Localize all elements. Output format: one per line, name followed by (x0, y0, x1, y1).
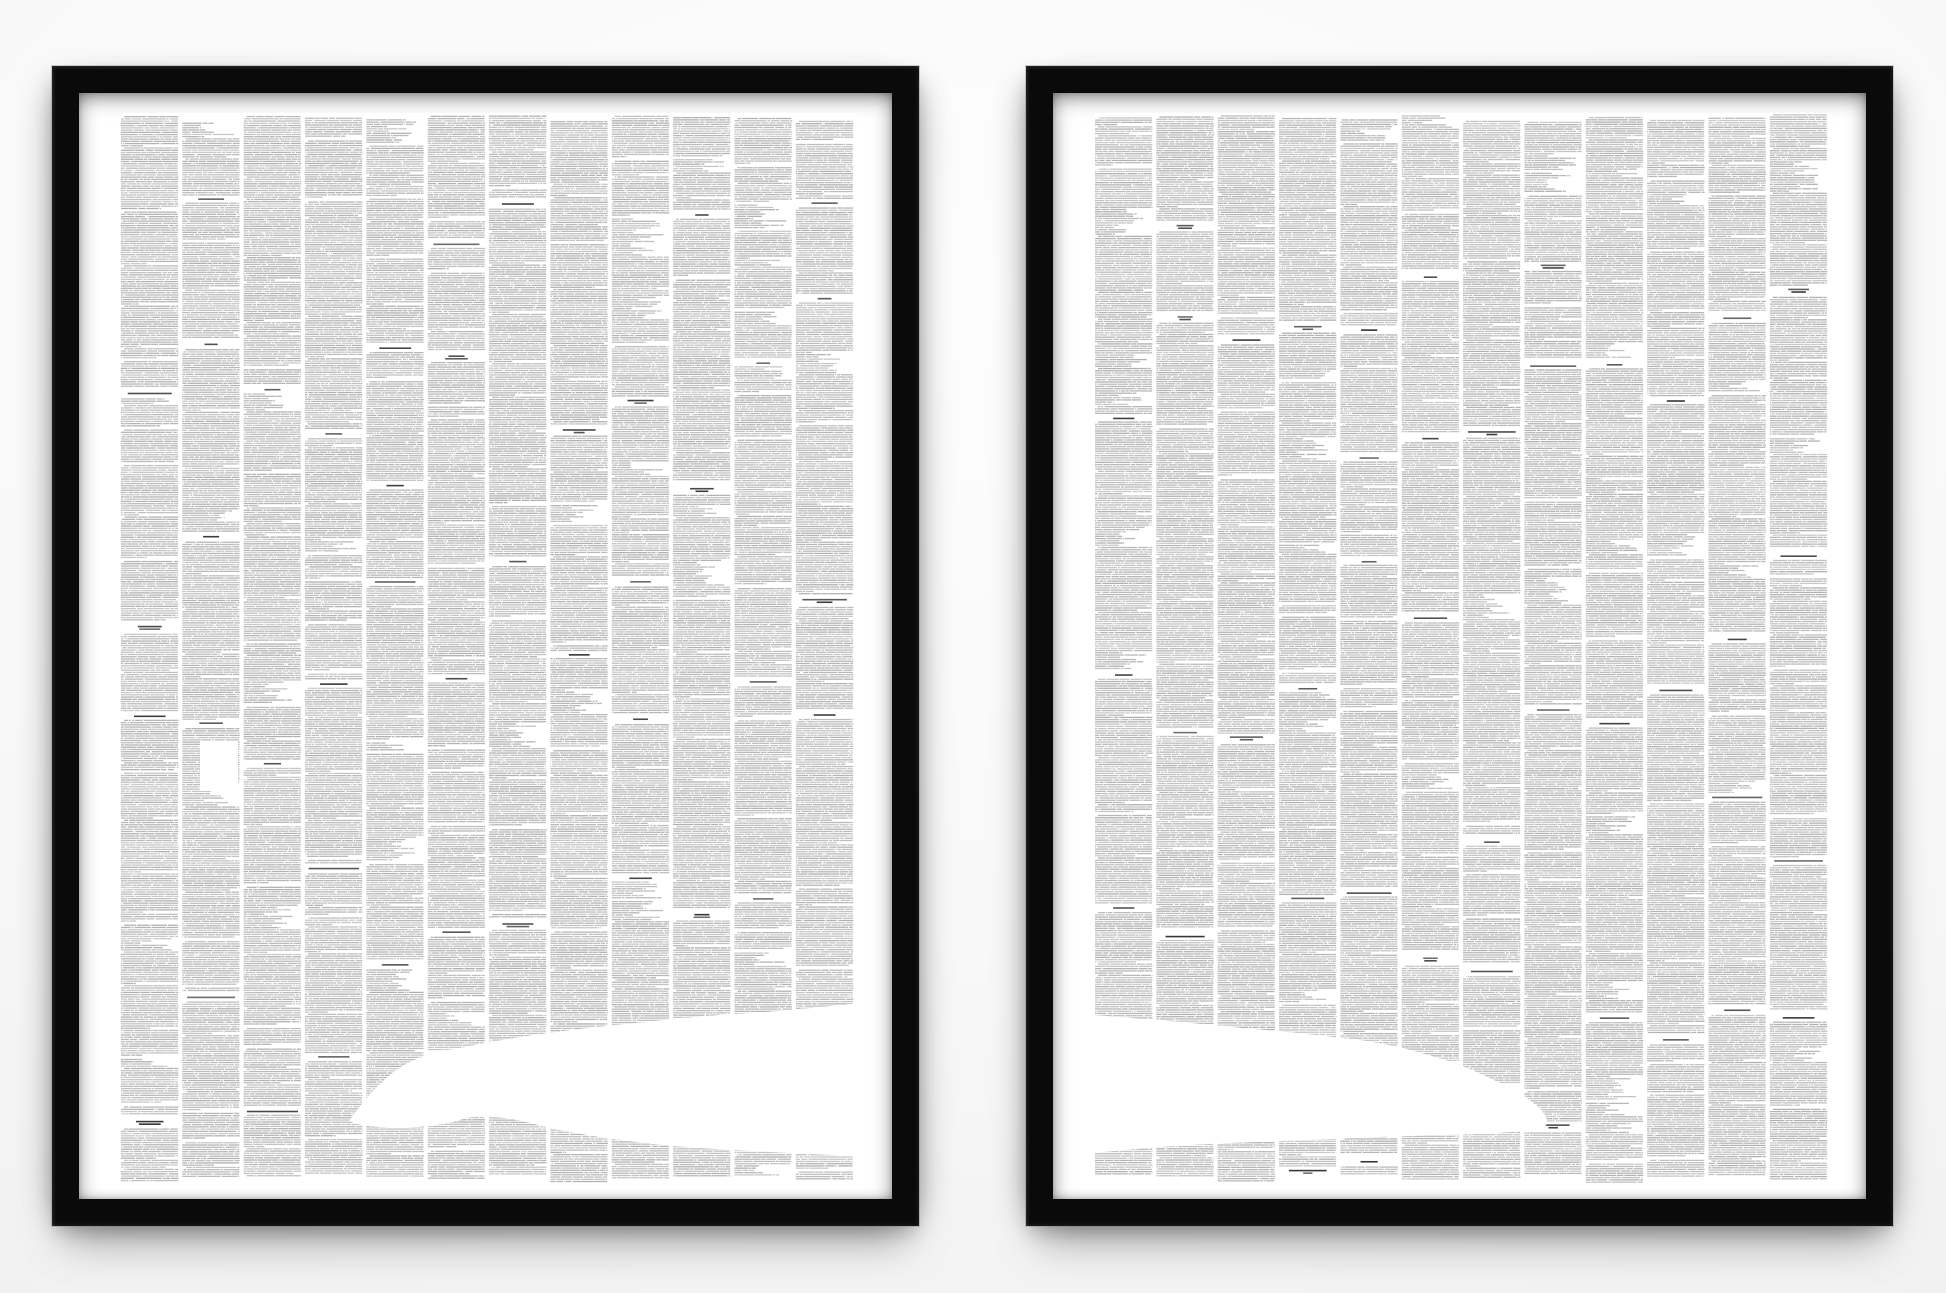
book-text-print (121, 113, 857, 1184)
poster-mat (1053, 93, 1866, 1199)
framed-poster-right (1026, 66, 1893, 1226)
poster-mat (79, 93, 892, 1199)
framed-poster-left (52, 66, 919, 1226)
book-text-print (1095, 113, 1831, 1184)
poster-frame (52, 66, 919, 1226)
whale-silhouette-tail (121, 113, 857, 1184)
poster-frame (1026, 66, 1893, 1226)
whale-tail-path (349, 1003, 857, 1157)
wall (0, 0, 1946, 1293)
whale-head-path (1095, 1015, 1547, 1153)
whale-silhouette-head (1095, 113, 1831, 1184)
